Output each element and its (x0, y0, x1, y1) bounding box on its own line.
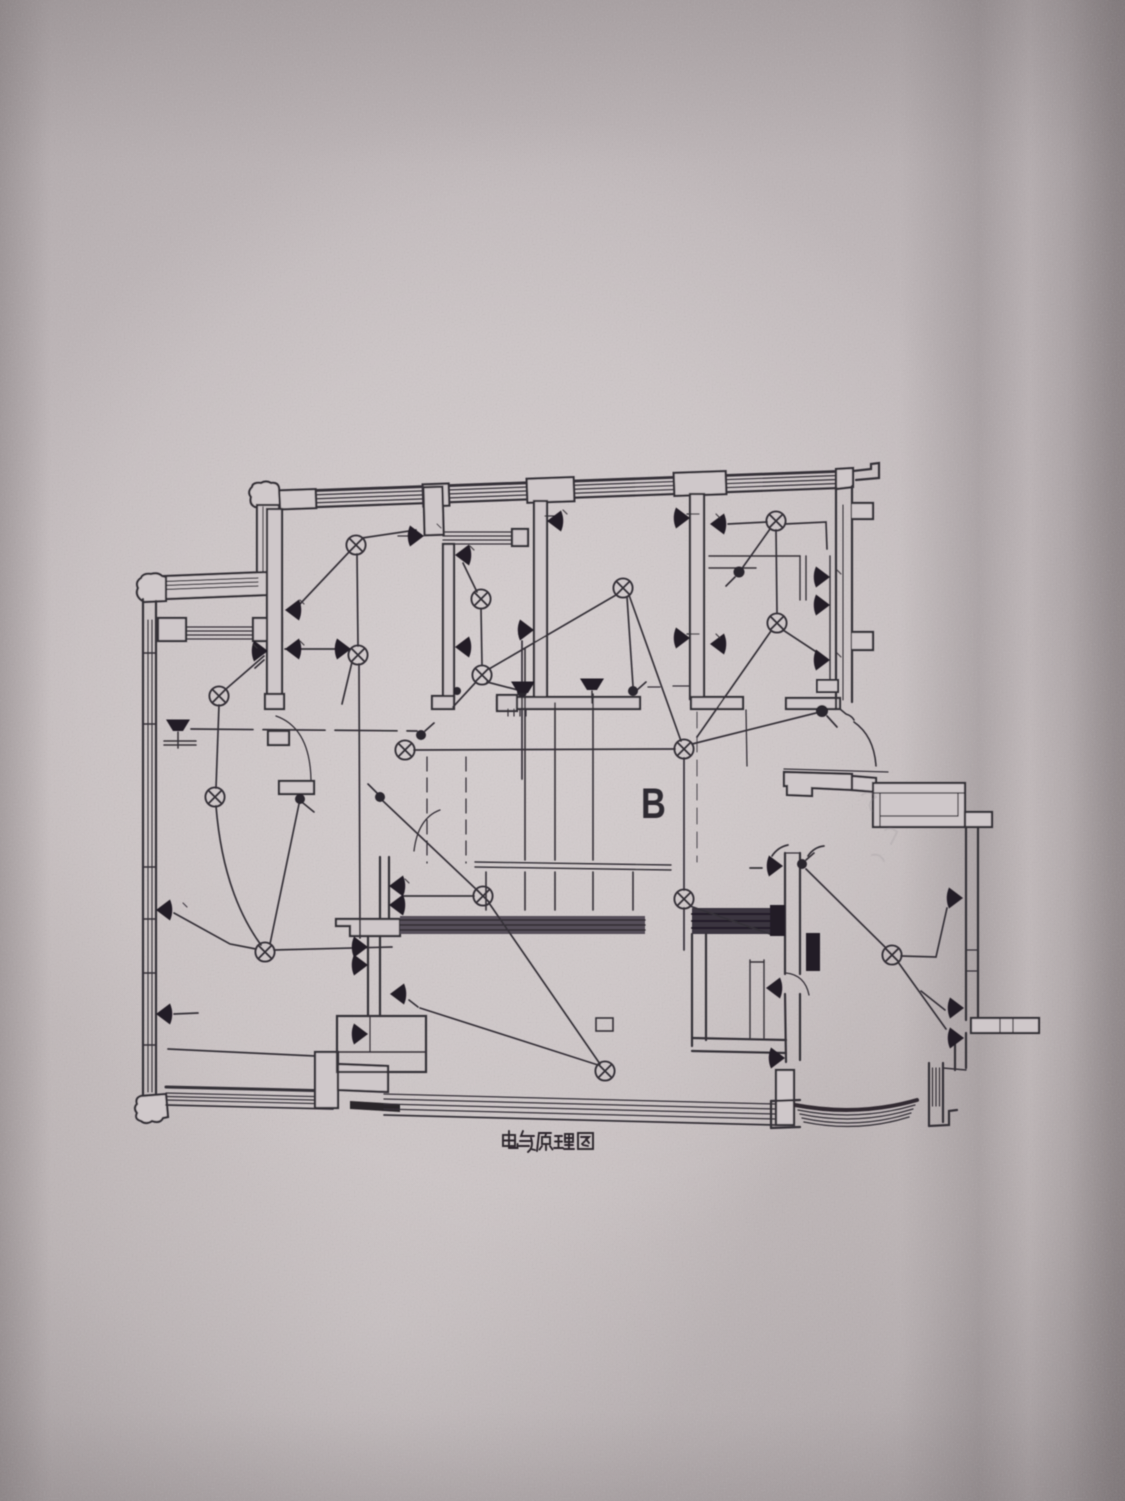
svg-text:B: B (641, 780, 666, 827)
